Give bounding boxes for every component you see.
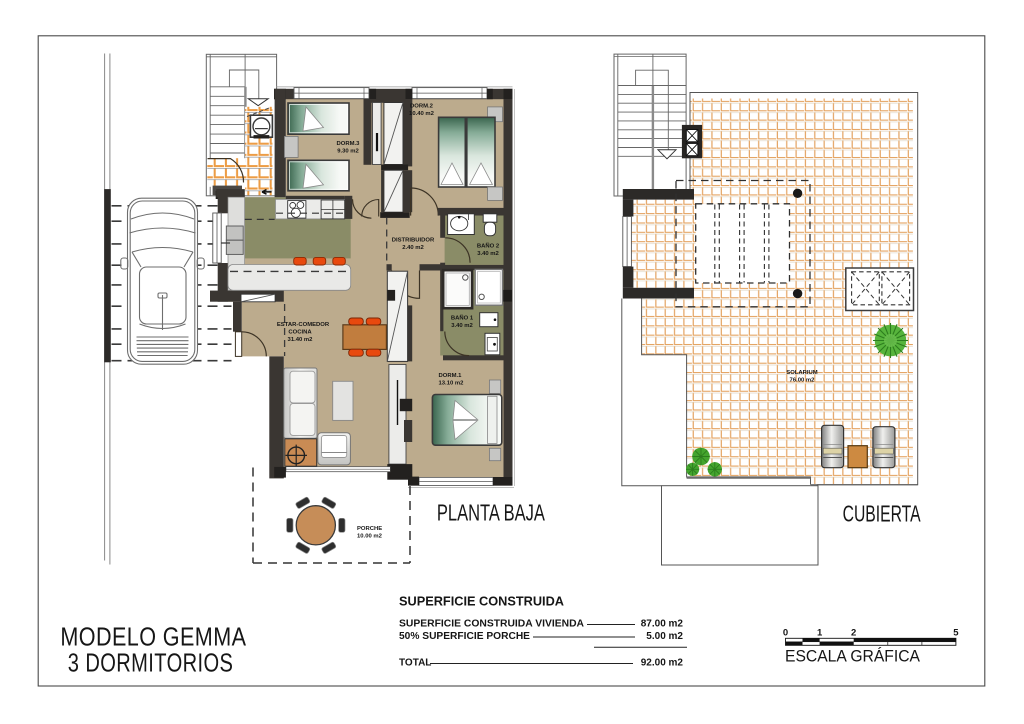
svg-text:87.00 m2: 87.00 m2: [641, 619, 684, 630]
svg-text:5: 5: [953, 628, 959, 639]
svg-text:2: 2: [851, 628, 856, 639]
svg-text:CUBIERTA: CUBIERTA: [843, 501, 921, 527]
svg-text:92.00 m2: 92.00 m2: [641, 658, 684, 669]
svg-text:SUPERFICIE CONSTRUIDA: SUPERFICIE CONSTRUIDA: [399, 594, 564, 609]
svg-text:31.40 m2: 31.40 m2: [288, 337, 314, 343]
svg-text:0: 0: [783, 628, 788, 639]
svg-text:5.00 m2: 5.00 m2: [646, 631, 683, 642]
svg-text:9.30 m2: 9.30 m2: [337, 149, 359, 155]
svg-text:PORCHE: PORCHE: [357, 526, 382, 532]
svg-text:DORM.2: DORM.2: [410, 104, 434, 110]
svg-text:COCINA: COCINA: [288, 330, 312, 336]
svg-text:3.40 m2: 3.40 m2: [477, 251, 499, 257]
svg-text:76.00 m2: 76.00 m2: [790, 378, 816, 384]
svg-text:1: 1: [817, 628, 823, 639]
svg-text:DORM.3: DORM.3: [337, 141, 361, 147]
svg-text:3 DORMITORIOS: 3 DORMITORIOS: [68, 648, 234, 678]
svg-text:3.40 m2: 3.40 m2: [451, 323, 473, 329]
svg-text:10.40 m2: 10.40 m2: [409, 111, 435, 117]
svg-text:10.00 m2: 10.00 m2: [357, 534, 383, 540]
svg-text:ESCALA GRÁFICA: ESCALA GRÁFICA: [785, 647, 920, 666]
svg-text:BAÑO 1: BAÑO 1: [451, 315, 474, 322]
svg-text:DORM.1: DORM.1: [439, 373, 463, 379]
svg-text:13.10 m2: 13.10 m2: [439, 381, 465, 387]
svg-text:SUPERFICIE CONSTRUIDA VIVIENDA: SUPERFICIE CONSTRUIDA VIVIENDA: [399, 619, 584, 630]
svg-text:TOTAL: TOTAL: [399, 658, 431, 669]
svg-text:BAÑO 2: BAÑO 2: [477, 243, 500, 250]
svg-text:ESTAR-COMEDOR: ESTAR-COMEDOR: [277, 322, 330, 328]
svg-text:2.40 m2: 2.40 m2: [402, 245, 424, 251]
svg-text:50% SUPERFICIE PORCHE: 50% SUPERFICIE PORCHE: [399, 631, 530, 642]
svg-text:PLANTA BAJA: PLANTA BAJA: [437, 500, 545, 526]
svg-text:DISTRIBUIDOR: DISTRIBUIDOR: [392, 238, 435, 244]
svg-text:SOLARIUM: SOLARIUM: [786, 370, 818, 376]
